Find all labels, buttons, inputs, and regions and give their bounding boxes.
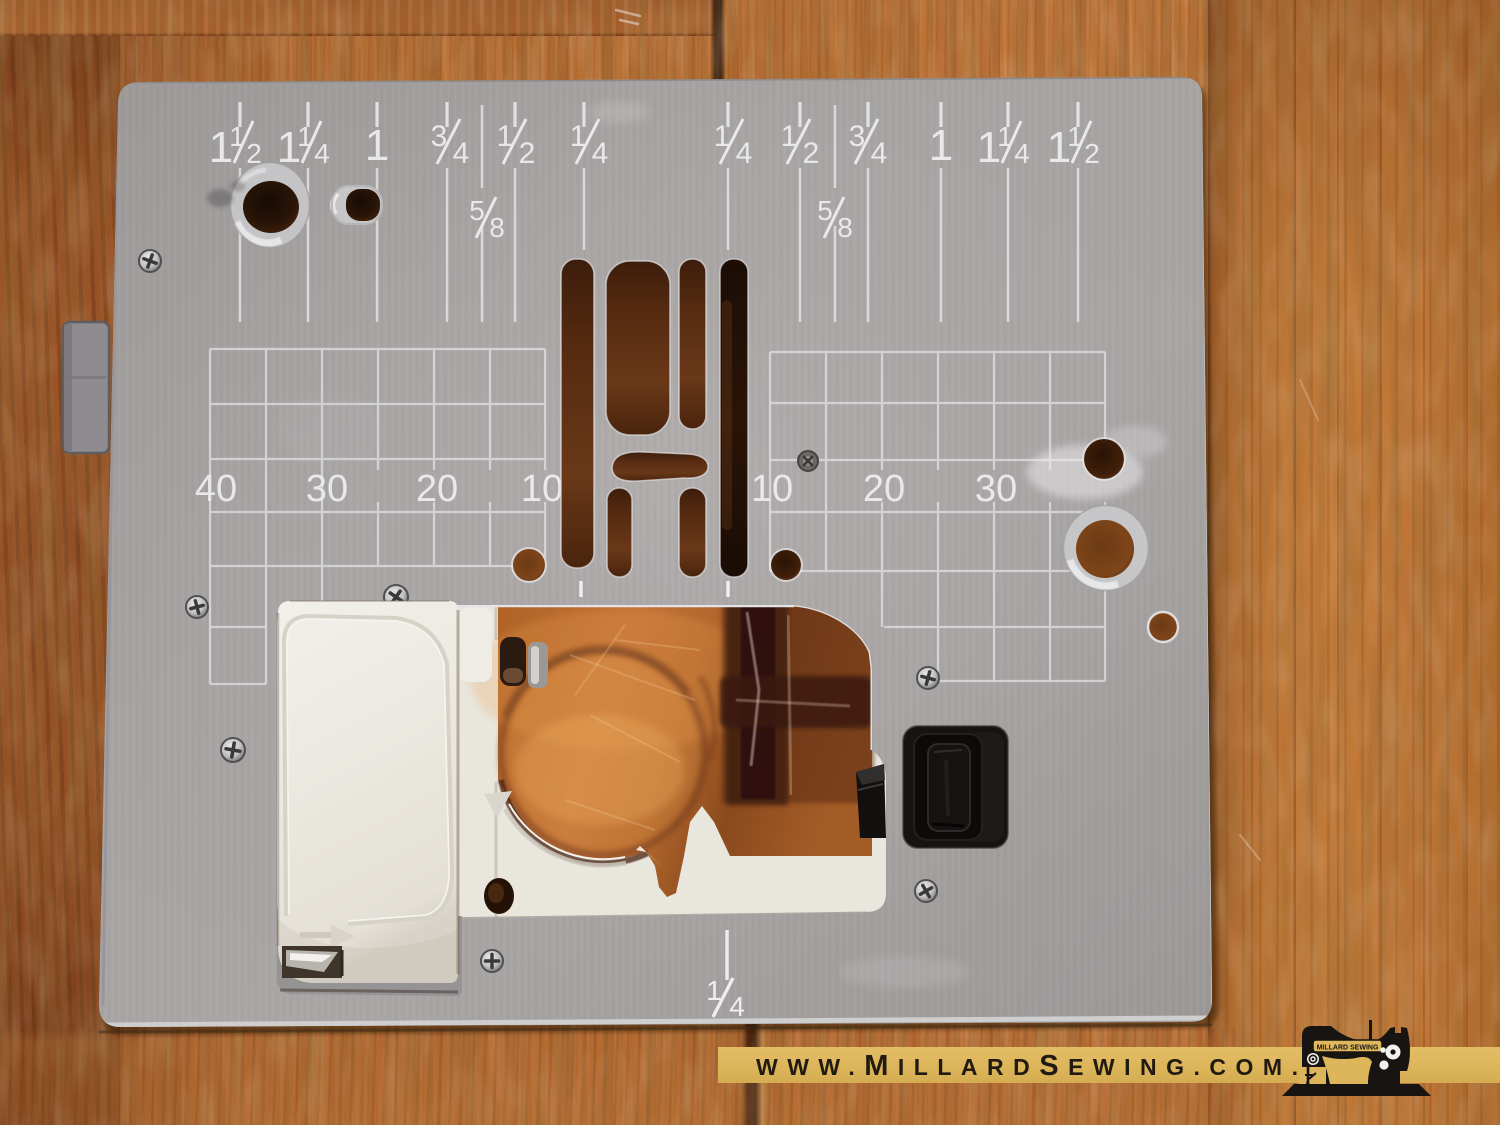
svg-text:4: 4: [729, 991, 745, 1022]
svg-text:2: 2: [519, 137, 536, 170]
svg-text:2: 2: [803, 137, 820, 170]
svg-text:30: 30: [306, 468, 348, 510]
svg-text:2: 2: [1084, 138, 1100, 169]
svg-text:8: 8: [489, 212, 505, 243]
svg-text:4: 4: [592, 137, 609, 170]
svg-text:1: 1: [365, 121, 389, 170]
svg-text:5: 5: [817, 195, 833, 226]
svg-text:1: 1: [929, 121, 953, 170]
svg-text:20: 20: [863, 468, 905, 510]
svg-text:5: 5: [469, 195, 485, 226]
svg-text:WWW.MILLARDSEWING.COM.: WWW.MILLARDSEWING.COM.: [756, 1050, 1307, 1082]
svg-text:4: 4: [1014, 138, 1030, 169]
svg-text:MILLARD SEWING: MILLARD SEWING: [1317, 1045, 1379, 1052]
svg-text:40: 40: [195, 468, 237, 510]
svg-text:30: 30: [975, 468, 1017, 510]
svg-text:10: 10: [751, 468, 793, 510]
svg-text:4: 4: [314, 138, 330, 169]
svg-text:8: 8: [837, 212, 853, 243]
svg-text:4: 4: [453, 137, 470, 170]
svg-text:20: 20: [416, 468, 458, 510]
svg-text:4: 4: [871, 137, 888, 170]
svg-text:10: 10: [521, 468, 563, 510]
svg-text:4: 4: [736, 137, 753, 170]
